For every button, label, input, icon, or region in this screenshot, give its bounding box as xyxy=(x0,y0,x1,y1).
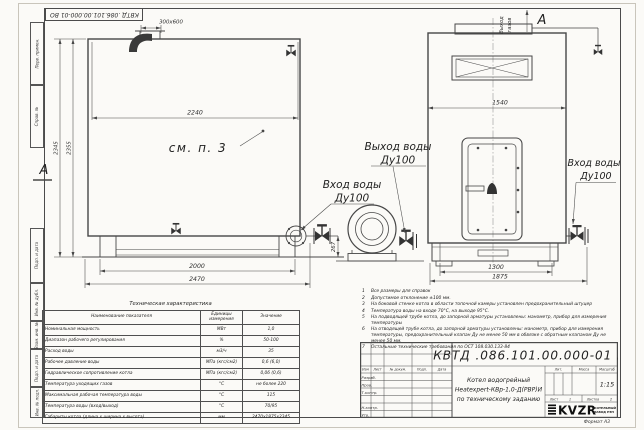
inlet-valve-right xyxy=(566,226,588,245)
spec-table-title: Техническая характеристика xyxy=(42,301,299,307)
dim-1875: 1875 xyxy=(492,274,508,281)
col-header-list: Лист xyxy=(372,368,381,372)
gas-outlet-label-1: Выход xyxy=(499,16,505,34)
logo-text: KVZR xyxy=(558,404,597,418)
spec-cell-value: 35 xyxy=(243,346,300,357)
note-item: 1Все размеры для справок xyxy=(362,289,619,295)
sheets-label: Листов xyxy=(586,397,599,401)
format-label: Формат А3 xyxy=(572,420,622,425)
water-outlet-label: Выход воды xyxy=(365,141,432,153)
spec-cell-units: м3/ч xyxy=(201,346,243,357)
note-item: 5На подводящей трубе котла, до запорной … xyxy=(362,315,619,326)
doc-title-line1: Котел водогрейный xyxy=(467,377,530,384)
spec-cell-name: Температура воды (вход/выход) xyxy=(43,401,201,412)
spec-row: Расход водым3/ч35 xyxy=(43,346,300,357)
note-number: 2 xyxy=(362,296,371,302)
spec-row: Температура уходящих газов°Сне более 220 xyxy=(43,379,300,390)
spec-cell-units: °С xyxy=(201,401,243,412)
callout-leaders xyxy=(33,10,616,233)
kvzr-logo xyxy=(548,405,556,415)
note-item: 2Допустимое отклонение ±100 мм. xyxy=(362,296,619,302)
spec-table-block: Техническая характеристика Наименование … xyxy=(42,301,299,424)
note-item: 4Температура воды на входе 70°С, на выхо… xyxy=(362,309,619,315)
spec-header-row: Наименование показателя Единицы измерени… xyxy=(43,310,300,324)
water-inlet-right-dn: Ду100 xyxy=(579,171,611,182)
flue-elbow xyxy=(129,34,152,52)
spec-cell-value: 2470х1875х2345 xyxy=(243,412,300,423)
spec-header-units: Единицы измерения xyxy=(201,310,243,324)
spec-cell-units: °С xyxy=(201,390,243,401)
note-number: 3 xyxy=(362,302,371,308)
note-text: Допустимое отклонение ±100 мм. xyxy=(371,296,451,302)
row-label-razrab: Разраб. xyxy=(362,376,377,380)
dim-2240: 2240 xyxy=(187,110,203,117)
water-inlet-mid-label: Вход воды xyxy=(323,179,382,191)
dim-2470: 2470 xyxy=(189,276,205,283)
title-block: КВТД .086.101.00.000-01 ВО Изм Лист № до… xyxy=(360,342,618,418)
spec-row: Габариты котла (длина х ширина х высота)… xyxy=(43,412,300,423)
row-label-tkontr: Т.контр. xyxy=(362,391,378,395)
blower-fan xyxy=(336,205,424,261)
drain-valve xyxy=(171,224,181,235)
spec-header-name: Наименование показателя xyxy=(43,310,201,324)
dim-267: 267 xyxy=(331,241,337,252)
row-label-nkontr: Н.контр. xyxy=(362,406,379,410)
outlet-valve-assembly xyxy=(399,231,416,250)
note-number: 1 xyxy=(362,289,371,295)
spec-cell-value: не более 220 xyxy=(243,379,300,390)
spec-cell-name: Максимальная рабочая температура воды xyxy=(43,390,201,401)
spec-cell-name: Рабочее давление воды xyxy=(43,357,201,368)
base-frame xyxy=(432,243,558,261)
note-number: 5 xyxy=(362,315,371,326)
gas-line-valve xyxy=(594,46,603,56)
air-vent-valve xyxy=(286,46,296,57)
dim-1540: 1540 xyxy=(492,100,508,107)
water-outlet-dn: Ду100 xyxy=(380,155,416,167)
note-text: На подводящей трубе котла, до запорной а… xyxy=(371,315,619,326)
spec-cell-value: 0,06 (0,6) xyxy=(243,368,300,379)
dim-2355: 2355 xyxy=(67,141,73,155)
scale-value: 1:15 xyxy=(600,381,615,389)
lit-label: Лит. xyxy=(554,368,563,372)
row-label-prov: Пров. xyxy=(362,384,373,388)
spec-cell-value: 1,0 xyxy=(243,324,300,335)
spec-row: Номинальная мощностьМВт1,0 xyxy=(43,324,300,335)
spec-cell-units: МПа (кгс/см2) xyxy=(201,368,243,379)
col-header-izm: Изм xyxy=(362,368,369,372)
section-marker-left: А xyxy=(39,163,49,178)
note-number: 4 xyxy=(362,309,371,315)
spec-cell-name: Номинальная мощность xyxy=(43,324,201,335)
spec-cell-units: % xyxy=(201,335,243,346)
spec-cell-value: 0,6 (6,0) xyxy=(243,357,300,368)
note-text: Все размеры для справок xyxy=(371,289,431,295)
spec-row: Диапазон рабочего регулирования%50-100 xyxy=(43,335,300,346)
sheet-label: Лист xyxy=(549,397,558,401)
spec-cell-value: 70/95 xyxy=(243,401,300,412)
note-text: На боковой стенке котла в области топочн… xyxy=(371,302,592,308)
spec-row: Температура воды (вход/выход)°С70/95 xyxy=(43,401,300,412)
sheets-value: 2 xyxy=(610,397,612,401)
drawing-sheet: Перв. примен. Справ. № Подп. и дата Инв.… xyxy=(0,0,644,430)
row-label-utv: Утв. xyxy=(362,414,370,418)
spec-cell-units: МПа (кгс/см2) xyxy=(201,357,243,368)
spec-row: Гидравлическое сопротивление котлаМПа (к… xyxy=(43,368,300,379)
note-item: 3На боковой стенке котла в области топоч… xyxy=(362,302,619,308)
col-header-podp: Подп. xyxy=(417,368,427,372)
view-marker-right: А xyxy=(537,13,547,28)
spec-cell-name: Расход воды xyxy=(43,346,201,357)
spec-cell-name: Температура уходящих газов xyxy=(43,379,201,390)
spec-table: Наименование показателя Единицы измерени… xyxy=(42,310,300,424)
water-inlet-mid-dn: Ду100 xyxy=(334,193,370,205)
col-header-dokum: № докум. xyxy=(389,368,406,372)
dim-2000: 2000 xyxy=(189,263,205,270)
front-view-outline xyxy=(428,18,598,266)
doc-number: КВТД .086.101.00.000-01 ВО xyxy=(433,349,618,363)
dim-300x600: 300x600 xyxy=(159,20,183,26)
doc-title-line3: по техническому заданию xyxy=(457,396,540,403)
water-inlet-right-label: Вход воды xyxy=(567,158,621,169)
spec-cell-name: Диапазон рабочего регулирования xyxy=(43,335,201,346)
scale-label: Масштаб xyxy=(599,368,615,372)
door-latch xyxy=(487,183,497,194)
mass-label: Масса xyxy=(579,368,590,372)
spec-cell-value: 50-100 xyxy=(243,335,300,346)
inlet-valve-mid xyxy=(314,225,330,244)
dim-1300: 1300 xyxy=(488,264,504,271)
spec-header-value: Значение xyxy=(243,310,300,324)
sheet-value: 1 xyxy=(569,397,571,401)
dim-2345: 2345 xyxy=(54,141,60,155)
spec-cell-units: МВт xyxy=(201,324,243,335)
spec-cell-name: Гидравлическое сопротивление котла xyxy=(43,368,201,379)
spec-cell-name: Габариты котла (длина х ширина х высота) xyxy=(43,412,201,423)
spec-row: Максимальная рабочая температура воды°С1… xyxy=(43,390,300,401)
see-note-ref: см. п. 3 xyxy=(169,141,227,155)
logo-sub-line2: ЗАВОД РЭП xyxy=(594,410,614,414)
spec-cell-units: мм xyxy=(201,412,243,423)
note-text: Температура воды на входе 70°С, на выход… xyxy=(371,309,489,315)
col-header-data: Дата xyxy=(437,368,447,372)
gas-outlet-label-2: газов xyxy=(507,18,513,33)
doc-title-line2: Heatexpert-КВр-1,0-Д(РВР)И xyxy=(455,387,543,394)
door-bolts xyxy=(477,147,520,232)
spec-cell-units: °С xyxy=(201,379,243,390)
door-handle xyxy=(466,186,484,191)
spec-cell-value: 115 xyxy=(243,390,300,401)
spec-row: Рабочее давление водыМПа (кгс/см2)0,6 (6… xyxy=(43,357,300,368)
